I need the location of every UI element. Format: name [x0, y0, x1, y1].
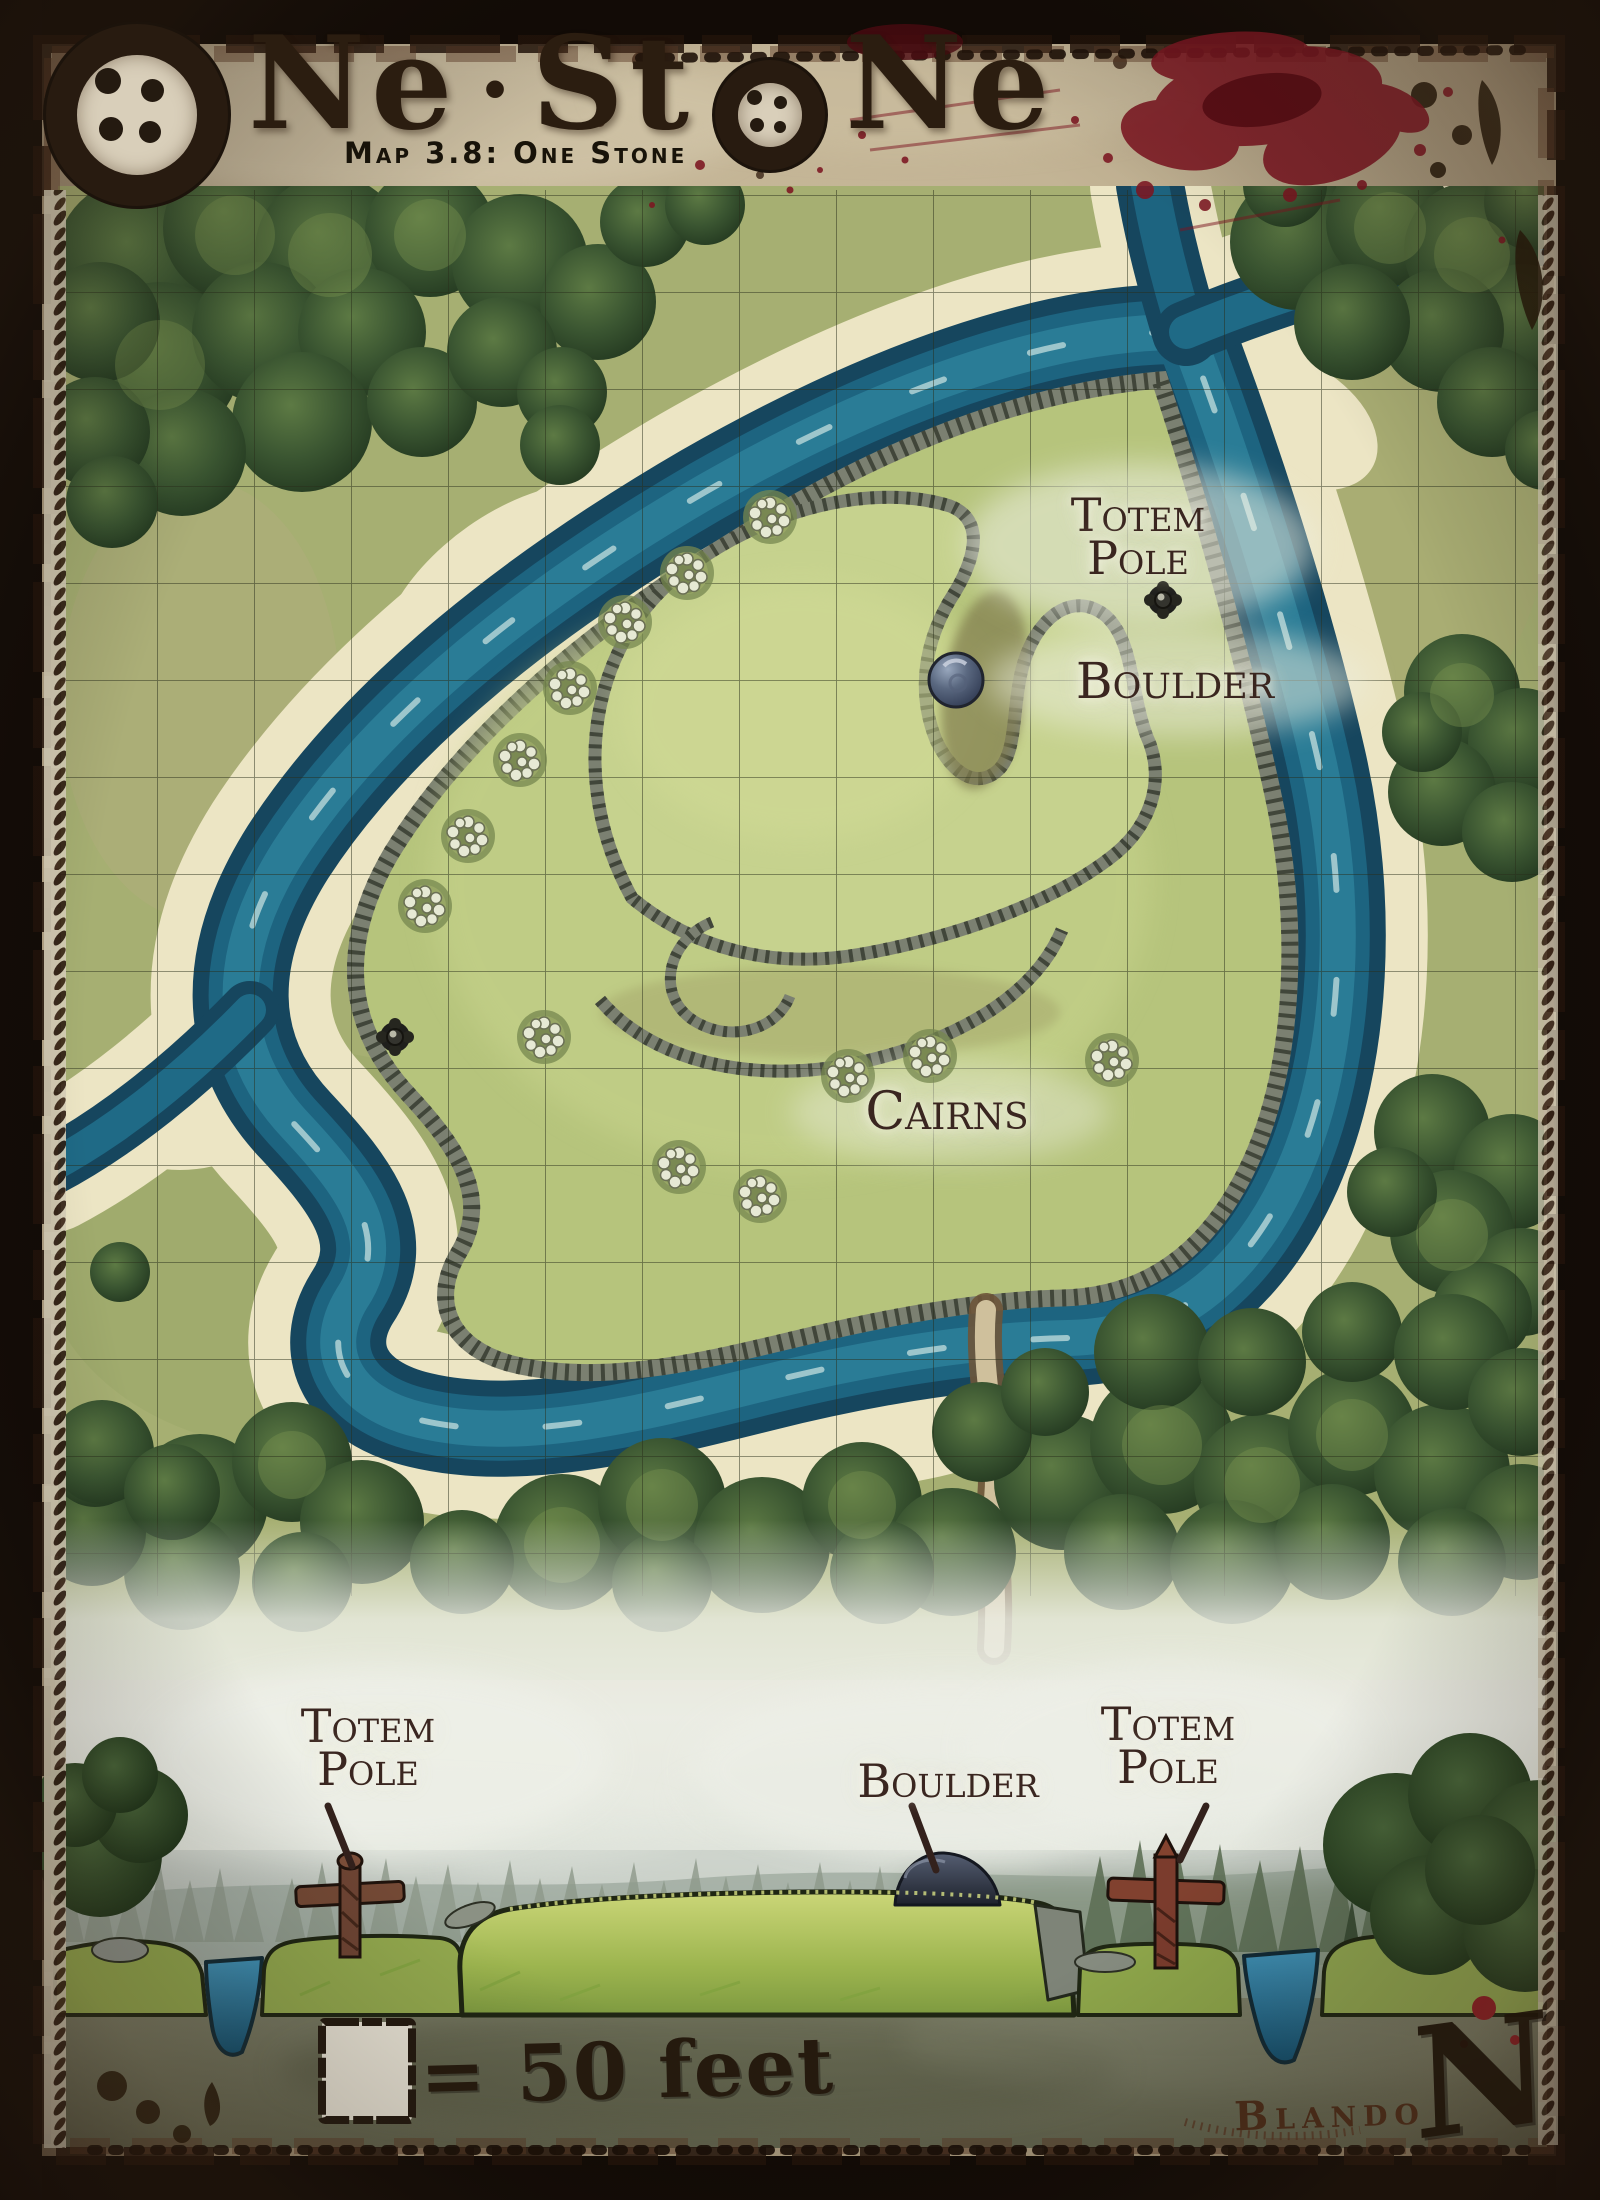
label-totem-pole-left: Totem Pole	[301, 1705, 435, 1791]
label-boulder-top: Boulder	[1076, 652, 1274, 710]
compass-north-label: N	[1411, 1990, 1554, 2162]
label-cairns: Cairns	[865, 1082, 1028, 1142]
title-separator: ·	[478, 42, 511, 137]
map-subtitle: Map 3.8: One Stone	[344, 136, 687, 170]
scale-legend-text: = 50 feet	[419, 2021, 836, 2123]
label-totem-pole-top: Totem Pole	[1071, 494, 1205, 580]
label-totem-pole-right: Totem Pole	[1101, 1703, 1235, 1789]
stone-o-glyph-large	[46, 24, 228, 206]
title-segment: Ne	[845, 20, 1055, 148]
artist-signature: Blando	[1233, 2087, 1426, 2141]
stone-o-glyph-small	[715, 60, 825, 170]
page-title: Ne · St Ne	[46, 20, 1056, 206]
title-segment: St	[532, 20, 696, 148]
map-artwork	[0, 0, 1600, 2200]
label-boulder-side: Boulder	[857, 1754, 1038, 1808]
map-page: Ne · St Ne Map 3.8: One Stone Totem Pole…	[0, 0, 1600, 2200]
title-segment: Ne	[248, 20, 458, 148]
vignette	[0, 0, 1600, 2200]
